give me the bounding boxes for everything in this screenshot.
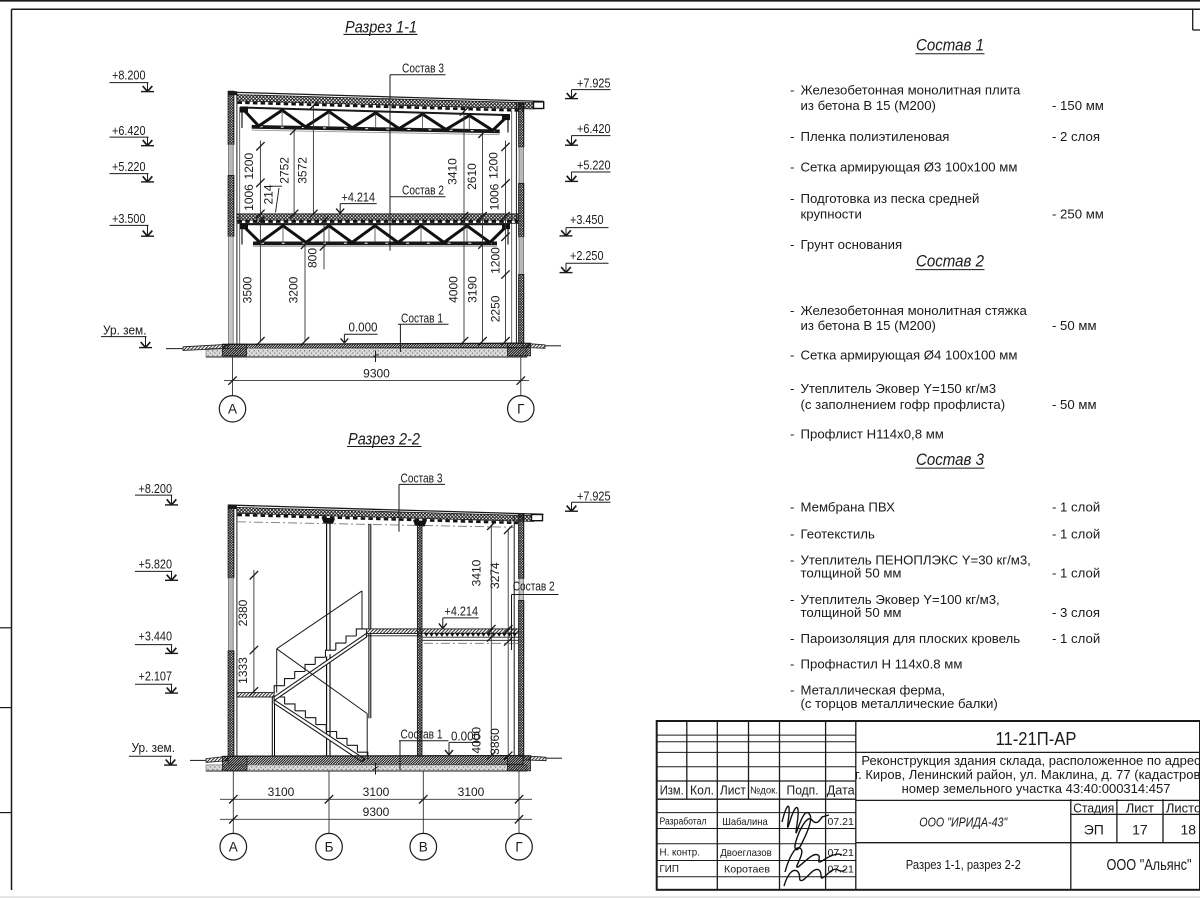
svg-text:214: 214 (261, 184, 275, 204)
svg-text:А: А (229, 840, 238, 855)
svg-text:-: - (790, 499, 794, 514)
svg-text:Подп.: Подп. (787, 783, 819, 798)
svg-text:+3.450: +3.450 (570, 212, 604, 227)
svg-text:Кол.: Кол. (690, 783, 714, 798)
svg-text:-: - (790, 129, 794, 144)
svg-text:- 2 слоя: - 2 слоя (1052, 129, 1100, 144)
svg-text:Разрез 1-1, разрез 2-2: Разрез 1-1, разрез 2-2 (906, 857, 1021, 872)
svg-text:(с заполнением гофр профлиста): (с заполнением гофр профлиста) (801, 397, 1006, 412)
svg-text:07.21: 07.21 (828, 863, 854, 875)
svg-text:крупности: крупности (801, 207, 862, 222)
svg-text:+2.250: +2.250 (570, 248, 604, 263)
svg-text:+4.214: +4.214 (342, 190, 376, 205)
svg-text:Стадия: Стадия (1073, 800, 1114, 815)
svg-text:-: - (790, 381, 794, 396)
svg-text:Состав 1: Состав 1 (401, 727, 443, 742)
svg-text:+6.420: +6.420 (112, 123, 146, 138)
svg-text:ЭП: ЭП (1084, 822, 1104, 838)
svg-text:ООО "ИРИДА-43": ООО "ИРИДА-43" (919, 814, 1008, 829)
svg-text:- 1 слой: - 1 слой (1052, 526, 1100, 541)
svg-text:+5.220: +5.220 (577, 158, 611, 173)
svg-text:1333: 1333 (236, 657, 250, 684)
svg-text:Геотекстиль: Геотекстиль (801, 526, 875, 541)
svg-text:- 1 слой: - 1 слой (1052, 631, 1100, 646)
svg-text:800: 800 (305, 248, 319, 268)
svg-text:из бетона В 15 (М200): из бетона В 15 (М200) (801, 318, 936, 333)
svg-text:из бетона В 15 (М200): из бетона В 15 (М200) (801, 98, 936, 113)
svg-text:- 50 мм: - 50 мм (1052, 318, 1097, 333)
svg-text:Состав 1: Состав 1 (401, 311, 443, 326)
svg-text:Состав 2: Состав 2 (513, 579, 555, 594)
svg-text:3200: 3200 (286, 276, 300, 303)
svg-text:ГИП: ГИП (660, 864, 679, 875)
svg-text:-: - (790, 191, 794, 206)
svg-text:Лист: Лист (1126, 800, 1154, 815)
svg-text:г. Киров, Ленинский район, ул.: г. Киров, Ленинский район, ул. Маклина, … (855, 767, 1200, 782)
svg-text:-: - (790, 427, 794, 442)
svg-text:Двоеглазов: Двоеглазов (720, 847, 772, 859)
svg-text:Листов: Листов (1166, 800, 1200, 815)
svg-text:+5.220: +5.220 (112, 159, 146, 174)
svg-text:+3.440: +3.440 (139, 629, 173, 644)
svg-text:+7.925: +7.925 (577, 76, 611, 91)
svg-text:2752: 2752 (278, 157, 292, 184)
svg-text:Разрез 1-1: Разрез 1-1 (345, 19, 417, 37)
svg-text:9300: 9300 (363, 805, 390, 819)
svg-text:- 150 мм: - 150 мм (1052, 98, 1104, 113)
svg-text:Реконструкция здания склада, р: Реконструкция здания склада, расположенн… (861, 753, 1200, 768)
svg-text:17: 17 (1132, 822, 1148, 838)
svg-text:07.21: 07.21 (828, 847, 854, 859)
svg-text:Н. контр.: Н. контр. (660, 848, 700, 859)
svg-text:Ур. зем.: Ур. зем. (103, 323, 147, 338)
svg-text:3572: 3572 (296, 157, 310, 184)
svg-text:- 1 слой: - 1 слой (1052, 565, 1100, 580)
svg-text:Б: Б (325, 840, 334, 855)
svg-text:Мембрана ПВХ: Мембрана ПВХ (801, 499, 896, 514)
svg-text:3100: 3100 (268, 785, 295, 799)
svg-text:Утеплитель Эковер Y=150 кг/м3: Утеплитель Эковер Y=150 кг/м3 (801, 381, 997, 396)
svg-text:- 1 слой: - 1 слой (1052, 499, 1100, 514)
svg-text:-: - (790, 657, 794, 672)
svg-text:(с торцов металлические балки): (с торцов металлические балки) (801, 696, 998, 711)
svg-text:Состав 3: Состав 3 (402, 61, 444, 76)
svg-text:Сетка армирующая Ø3 100х100 мм: Сетка армирующая Ø3 100х100 мм (801, 159, 1018, 174)
svg-text:Состав 1: Состав 1 (916, 36, 984, 55)
svg-text:номер земельного участка 43:40: номер земельного участка 43:40:000314:45… (902, 781, 1171, 796)
svg-text:Разработал: Разработал (660, 816, 707, 827)
svg-text:Профлист Н114х0,8 мм: Профлист Н114х0,8 мм (801, 427, 944, 442)
svg-text:Железобетонная монолитная пли: Железобетонная монолитная плита (801, 82, 1021, 97)
svg-text:Пленка полиэтиленовая: Пленка полиэтиленовая (801, 129, 950, 144)
svg-text:18: 18 (1181, 822, 1197, 838)
svg-text:толщиной 50 мм: толщиной 50 мм (801, 605, 902, 620)
svg-text:1200: 1200 (242, 153, 256, 180)
svg-text:Грунт основания: Грунт основания (801, 237, 903, 252)
svg-text:-: - (790, 82, 794, 97)
svg-text:Состав 3: Состав 3 (916, 450, 984, 469)
svg-text:толщиной 50 мм: толщиной 50 мм (801, 565, 902, 580)
svg-text:Подготовка из песка средней: Подготовка из песка средней (801, 191, 980, 206)
svg-text:+6.420: +6.420 (577, 121, 611, 136)
svg-text:-: - (790, 553, 794, 568)
svg-text:В: В (419, 840, 428, 855)
svg-text:ООО "Альянс": ООО "Альянс" (1107, 857, 1192, 874)
svg-text:А: А (228, 402, 237, 417)
svg-text:3100: 3100 (458, 785, 485, 799)
svg-text:3500: 3500 (241, 276, 255, 303)
svg-text:+7.925: +7.925 (577, 488, 611, 503)
svg-text:3860: 3860 (488, 728, 502, 755)
svg-text:Ур. зем.: Ур. зем. (132, 740, 176, 755)
svg-text:-: - (790, 683, 794, 698)
svg-text:1006: 1006 (488, 183, 502, 210)
svg-text:3410: 3410 (470, 559, 484, 586)
svg-text:Разрез 2-2: Разрез 2-2 (348, 430, 420, 448)
svg-text:Состав 2: Состав 2 (402, 183, 444, 198)
svg-text:- 50 мм: - 50 мм (1052, 397, 1097, 412)
svg-text:Лист: Лист (720, 783, 746, 798)
svg-text:Г: Г (517, 402, 525, 417)
svg-text:2380: 2380 (236, 599, 250, 626)
svg-text:+5.820: +5.820 (139, 556, 173, 571)
svg-text:1200: 1200 (487, 152, 501, 179)
svg-text:3274: 3274 (488, 562, 502, 589)
svg-text:+8.200: +8.200 (112, 68, 146, 83)
svg-text:Дата: Дата (827, 783, 856, 798)
svg-text:Состав 2: Состав 2 (916, 251, 984, 270)
svg-text:2610: 2610 (465, 163, 479, 190)
svg-text:Г: Г (515, 840, 523, 855)
svg-text:- 250 мм: - 250 мм (1052, 207, 1104, 222)
svg-text:2250: 2250 (489, 295, 503, 322)
svg-text:3100: 3100 (363, 785, 390, 799)
svg-text:Состав 3: Состав 3 (401, 470, 443, 485)
svg-text:+4.214: +4.214 (445, 603, 479, 618)
svg-text:0.000: 0.000 (349, 320, 378, 335)
svg-text:-: - (790, 303, 794, 318)
svg-text:+3.500: +3.500 (112, 211, 146, 226)
svg-text:Профнастил Н 114х0.8 мм: Профнастил Н 114х0.8 мм (801, 657, 963, 672)
svg-text:1006: 1006 (242, 184, 256, 211)
svg-text:Изм.: Изм. (660, 783, 684, 798)
svg-text:+8.200: +8.200 (139, 481, 173, 496)
svg-text:3190: 3190 (466, 276, 480, 303)
svg-text:Пароизоляция для плоских крове: Пароизоляция для плоских кровель (801, 631, 1021, 646)
svg-text:1200: 1200 (489, 247, 503, 274)
svg-text:-: - (790, 237, 794, 252)
svg-text:№док.: №док. (750, 786, 778, 797)
svg-text:07.21: 07.21 (828, 816, 854, 828)
svg-text:-: - (790, 348, 794, 363)
svg-text:9300: 9300 (363, 366, 390, 380)
svg-text:3410: 3410 (446, 158, 460, 185)
svg-text:11-21П-АР: 11-21П-АР (996, 729, 1077, 749)
svg-text:Железобетонная монолитная стя: Железобетонная монолитная стяжка (801, 303, 1028, 318)
svg-text:4000: 4000 (470, 727, 484, 754)
svg-text:Шабалина: Шабалина (722, 816, 768, 828)
svg-text:-: - (790, 526, 794, 541)
svg-text:4000: 4000 (447, 276, 461, 303)
svg-text:-: - (790, 631, 794, 646)
svg-text:-: - (790, 592, 794, 607)
svg-text:Сетка армирующая Ø4 100х100 мм: Сетка армирующая Ø4 100х100 мм (801, 348, 1018, 363)
svg-text:+2.107: +2.107 (139, 669, 173, 684)
svg-text:- 3 слоя: - 3 слоя (1052, 605, 1100, 620)
svg-text:Коротаев: Коротаев (724, 863, 770, 875)
svg-text:-: - (790, 159, 794, 174)
